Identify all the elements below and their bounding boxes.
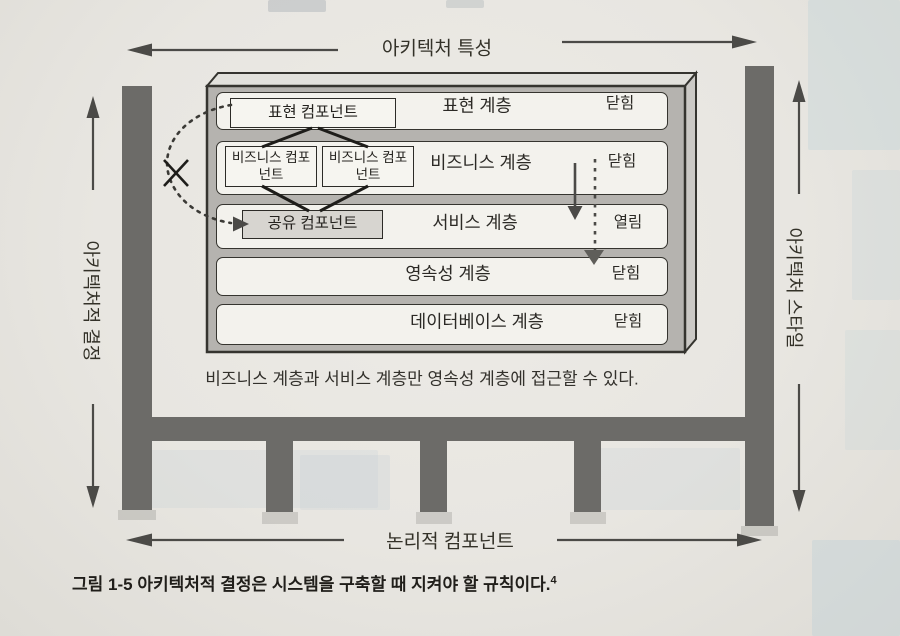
layer-name-service: 서비스 계층 xyxy=(432,210,517,235)
x-mark-icon xyxy=(164,160,188,186)
leg-shadow xyxy=(570,512,606,524)
support-leg xyxy=(420,441,447,512)
horizontal-beam xyxy=(122,417,774,441)
leg-shadow xyxy=(118,510,156,520)
layer-name-database: 데이터베이스 계층 xyxy=(410,309,544,334)
presentation-component-label: 표현 컴포넌트 xyxy=(268,104,358,123)
page-bleed-artifact xyxy=(446,0,484,8)
right-axis-label: 아키텍처 스타일 xyxy=(782,228,808,349)
page-bleed-artifact xyxy=(300,455,390,510)
layer-name-business: 비즈니스 계층 xyxy=(430,150,531,175)
state-badge-service: 열림 xyxy=(614,210,643,232)
business-component-label-1: 비즈니스 컴포넌트 xyxy=(228,150,314,183)
right-column-beam xyxy=(745,66,774,526)
page-bleed-artifact xyxy=(268,0,326,12)
book-page-photo: 표현 컴포넌트 비즈니스 컴포넌트 비즈니스 컴포넌트 공유 컴포넌트 표현 계… xyxy=(0,0,900,636)
state-badge-presentation: 닫힘 xyxy=(606,91,635,113)
business-component-label-2: 비즈니스 컴포넌트 xyxy=(325,150,411,183)
business-component-box-2: 비즈니스 컴포넌트 xyxy=(322,146,414,187)
support-leg xyxy=(266,441,293,512)
business-component-box-1: 비즈니스 컴포넌트 xyxy=(225,146,317,187)
left-axis-label: 아키텍처적 결정 xyxy=(79,241,105,362)
layer-name-presentation: 표현 계층 xyxy=(442,93,511,118)
page-bleed-artifact xyxy=(808,0,900,150)
layer-name-persistence: 영속성 계층 xyxy=(405,261,490,286)
bottom-axis-label: 논리적 컴포넌트 xyxy=(386,527,514,554)
leg-shadow xyxy=(741,526,778,536)
page-bleed-artifact xyxy=(852,170,900,300)
leg-shadow xyxy=(416,512,452,524)
slab-top-bevel xyxy=(207,73,696,86)
page-bleed-artifact xyxy=(845,330,900,450)
shared-component-label: 공유 컴포넌트 xyxy=(268,215,358,234)
page-bleed-artifact xyxy=(600,448,740,510)
access-rule-note: 비즈니스 계층과 서비스 계층만 영속성 계층에 접근할 수 있다. xyxy=(205,365,639,390)
figure-caption-text: 아키텍처적 결정은 시스템을 구축할 때 지켜야 할 규칙이다. xyxy=(137,575,550,594)
presentation-component-box: 표현 컴포넌트 xyxy=(230,98,396,128)
slab-right-bevel xyxy=(685,73,696,352)
support-leg xyxy=(574,441,601,512)
page-bleed-artifact xyxy=(812,540,900,636)
state-badge-database: 닫힘 xyxy=(614,309,643,331)
figure-caption: 그림 1-5 아키텍처적 결정은 시스템을 구축할 때 지켜야 할 규칙이다.4 xyxy=(72,570,557,595)
footnote-marker: 4 xyxy=(550,574,556,586)
shared-component-box: 공유 컴포넌트 xyxy=(242,210,383,239)
state-badge-persistence: 닫힘 xyxy=(612,261,641,283)
figure-caption-number: 그림 1-5 xyxy=(72,575,133,594)
leg-shadow xyxy=(262,512,298,524)
state-badge-business: 닫힘 xyxy=(608,149,637,171)
top-axis-label: 아키텍처 특성 xyxy=(382,34,492,61)
left-column-beam xyxy=(122,86,152,510)
